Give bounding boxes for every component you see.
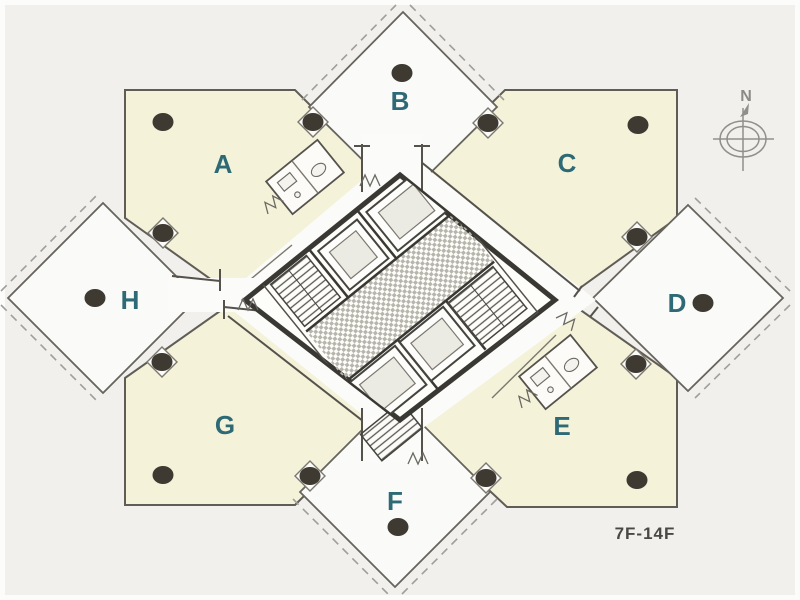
unit-g-label: G	[215, 410, 235, 440]
floor-plan-page: A B C D E F G H N 7F-14F	[0, 0, 800, 600]
column-dot	[85, 289, 106, 307]
column-dot	[628, 116, 649, 134]
floor-plan-canvas: A B C D E F G H N 7F-14F	[0, 0, 800, 600]
unit-b-label: B	[391, 86, 410, 116]
unit-f-label: F	[387, 486, 403, 516]
column-dot	[476, 469, 497, 487]
unit-h-label: H	[121, 285, 140, 315]
column-dot	[300, 467, 321, 485]
column-dot	[478, 114, 499, 132]
column-dot	[152, 353, 173, 371]
column-dot	[153, 224, 174, 242]
column-dot	[627, 471, 648, 489]
floor-range-label: 7F-14F	[615, 524, 676, 543]
column-dot	[388, 518, 409, 536]
column-dot	[627, 228, 648, 246]
column-dot	[693, 294, 714, 312]
unit-a-label: A	[214, 149, 233, 179]
column-dot	[626, 355, 647, 373]
unit-e-label: E	[553, 411, 570, 441]
unit-d-label: D	[668, 288, 687, 318]
unit-c-label: C	[558, 148, 577, 178]
column-dot	[392, 64, 413, 82]
column-dot	[303, 113, 324, 131]
north-label: N	[740, 88, 752, 105]
column-dot	[153, 466, 174, 484]
column-dot	[153, 113, 174, 131]
